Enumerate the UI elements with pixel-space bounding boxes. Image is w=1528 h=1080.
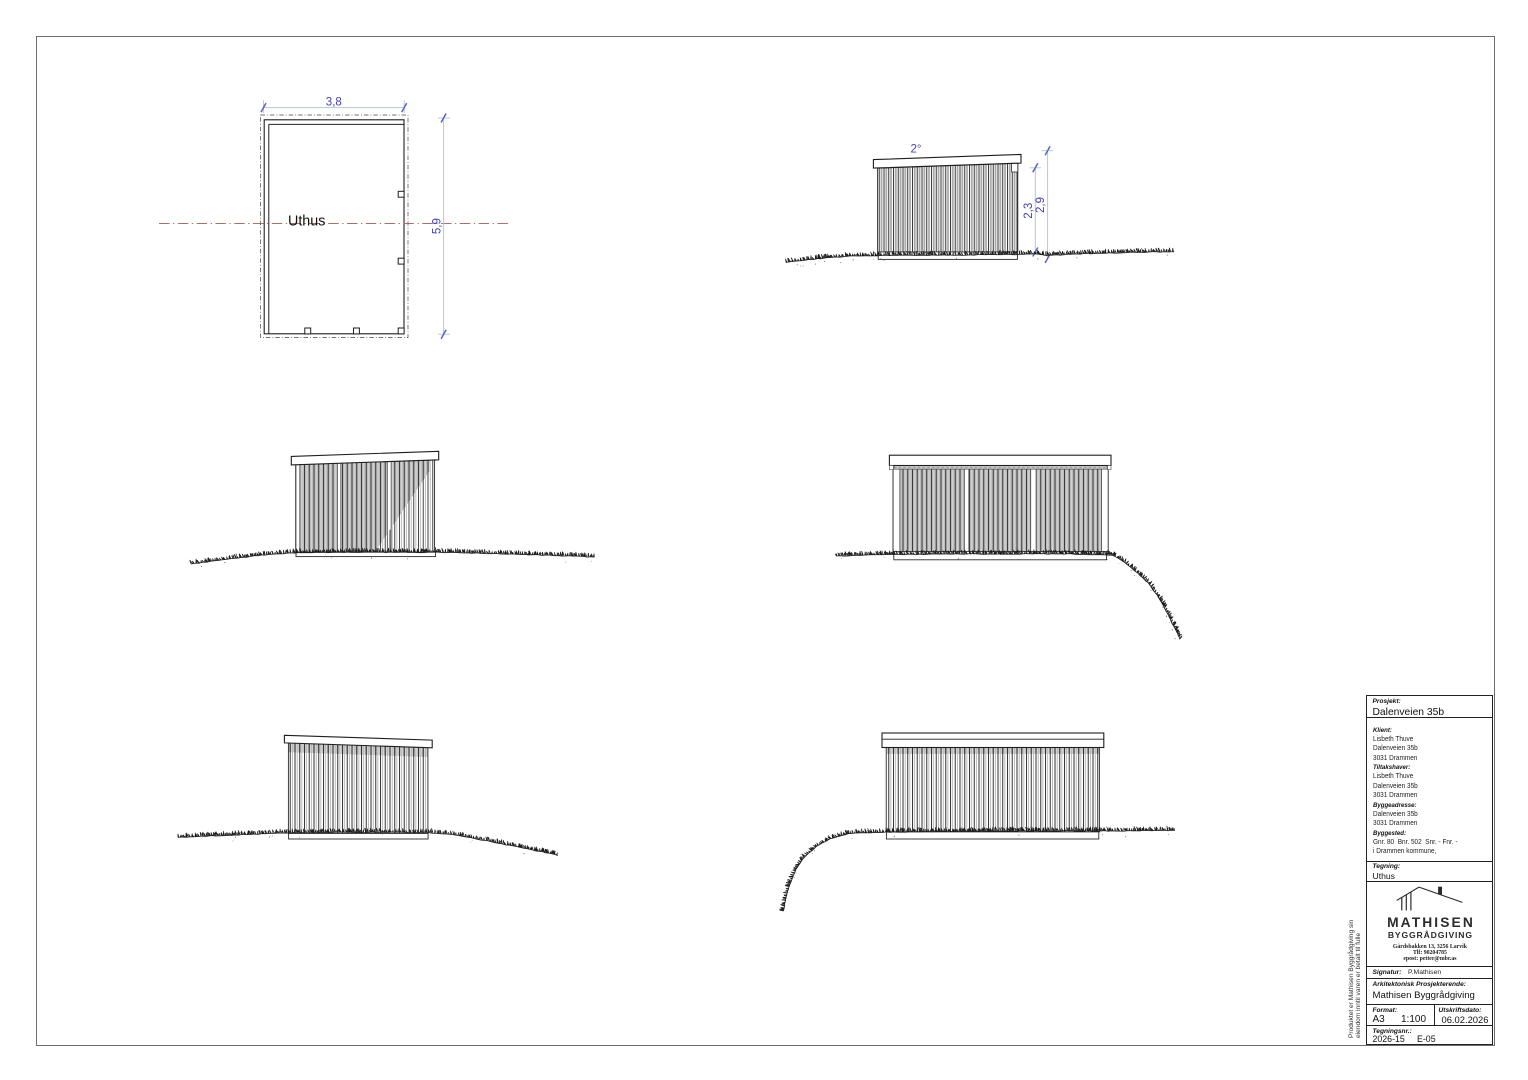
svg-text:3,8: 3,8 xyxy=(326,96,342,108)
svg-text:5,9: 5,9 xyxy=(431,218,443,234)
svg-text:2,9: 2,9 xyxy=(1035,197,1047,213)
svg-text:2,3: 2,3 xyxy=(1023,203,1035,219)
svg-text:2°: 2° xyxy=(911,144,922,156)
svg-text:Uthus: Uthus xyxy=(288,214,325,230)
